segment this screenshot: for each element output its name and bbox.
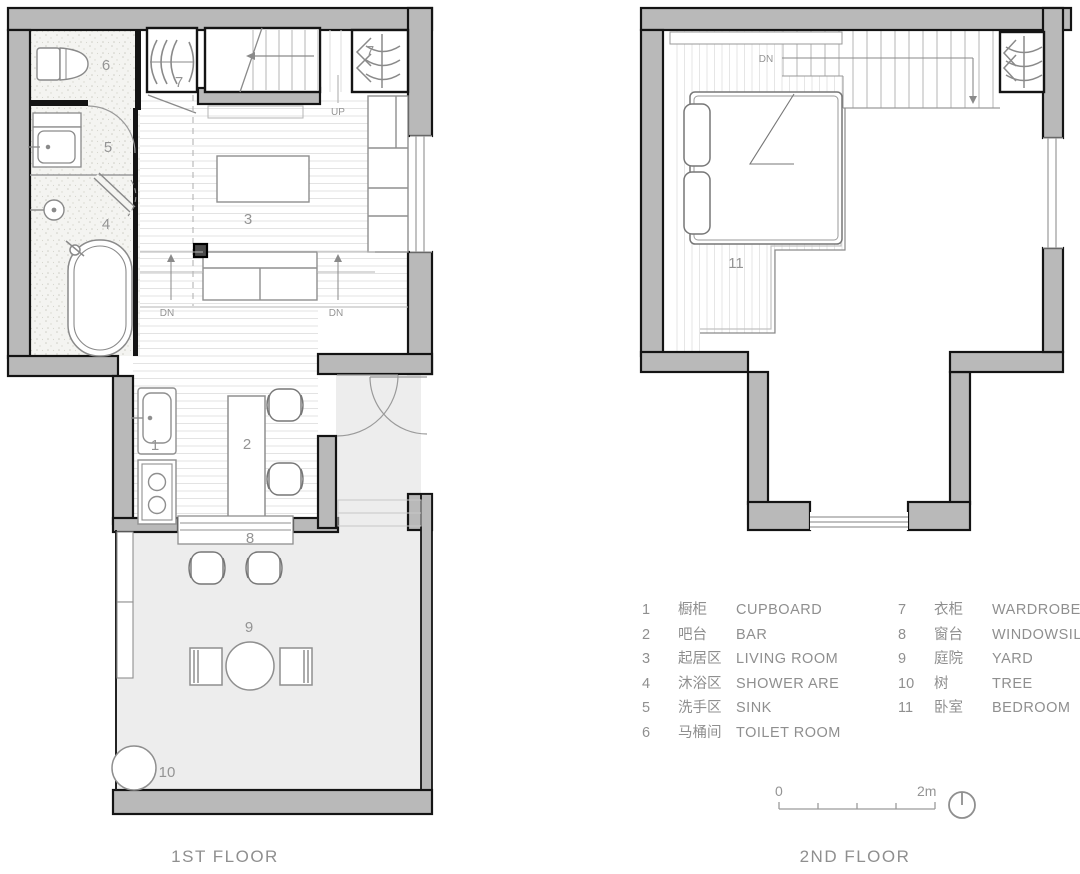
legend-item: 11 卧室 BEDROOM [898, 696, 1080, 721]
legend-chinese: 洗手区 [678, 696, 736, 721]
first-floor-title: 1ST FLOOR [135, 847, 315, 867]
legend-number: 2 [642, 623, 678, 648]
legend-item: 10 树 TREE [898, 672, 1080, 697]
legend-chinese: 衣柜 [934, 598, 992, 623]
sink-fixture [28, 113, 81, 167]
legend-number: 8 [898, 623, 934, 648]
up-label: UP [331, 107, 345, 118]
room-label-shower: 4 [102, 216, 110, 233]
legend-number: 4 [642, 672, 678, 697]
legend-english: WARDROBE [992, 598, 1080, 623]
room-label-cupboard: 1 [151, 437, 159, 454]
legend-item: 7 衣柜 WARDROBE [898, 598, 1080, 623]
column [194, 244, 207, 257]
room-label-toilet: 6 [102, 57, 110, 74]
extension-window [810, 512, 908, 530]
yard-chair-left [190, 648, 222, 685]
legend-chinese: 沐浴区 [678, 672, 736, 697]
bar-counter [228, 396, 265, 530]
legend-number: 7 [898, 598, 934, 623]
legend-chinese: 起居区 [678, 647, 736, 672]
toilet-fixture [37, 48, 88, 80]
legend-chinese: 树 [934, 672, 992, 697]
first-floor-floors [30, 30, 421, 792]
scale-2m-label: 2m [917, 783, 936, 799]
legend-column-2: 7 衣柜 WARDROBE 8 窗台 WINDOWSILL 9 庭院 YARD … [898, 598, 1080, 721]
legend-english: BEDROOM [992, 696, 1070, 721]
legend-chinese: 橱柜 [678, 598, 736, 623]
wardrobe-right [352, 30, 408, 92]
dn-label-right: DN [329, 308, 343, 319]
room-label-windowsill: 8 [246, 530, 254, 547]
room-label-wardrobe-left: 7 [175, 74, 183, 91]
legend-number: 6 [642, 721, 678, 746]
room-label-wardrobe-right: 7 [366, 43, 374, 60]
legend-number: 5 [642, 696, 678, 721]
legend-english: SINK [736, 696, 772, 721]
dn-label: DN [759, 54, 773, 65]
legend-english: BAR [736, 623, 767, 648]
living-room-window [410, 136, 432, 252]
wardrobe-second-floor [1000, 32, 1044, 92]
legend-item: 6 马桶间 TOILET ROOM [642, 721, 841, 746]
floor-plan-page: 1 2 3 4 5 6 7 7 8 9 10 UP DN DN [0, 0, 1080, 874]
legend-chinese: 卧室 [934, 696, 992, 721]
pillow [684, 104, 710, 166]
pillow [684, 172, 710, 234]
legend-item: 4 沐浴区 SHOWER ARE [642, 672, 841, 697]
cabinet [368, 96, 408, 252]
headboard-ledge [670, 32, 842, 44]
scale-bar: 0 2m [765, 782, 995, 830]
north-indicator-icon [949, 792, 975, 818]
legend-item: 1 橱柜 CUPBOARD [642, 598, 841, 623]
legend-english: TOILET ROOM [736, 721, 841, 746]
second-floor-plan: 11 DN [636, 0, 1076, 545]
legend-item: 2 吧台 BAR [642, 623, 841, 648]
legend-item: 9 庭院 YARD [898, 647, 1080, 672]
legend-english: YARD [992, 647, 1033, 672]
round-table [226, 642, 274, 690]
legend-english: SHOWER ARE [736, 672, 839, 697]
legend-english: LIVING ROOM [736, 647, 838, 672]
bathtub [66, 240, 132, 356]
bedroom-window-right [1043, 138, 1063, 248]
legend-item: 3 起居区 LIVING ROOM [642, 647, 841, 672]
room-label-bar: 2 [243, 436, 251, 453]
room-label-bedroom: 11 [728, 255, 744, 272]
room-label-sink: 5 [104, 139, 112, 156]
legend-english: TREE [992, 672, 1033, 697]
yard-chair-right [280, 648, 312, 685]
windowsill-bench [178, 516, 293, 544]
legend-number: 10 [898, 672, 934, 697]
tree-symbol [112, 746, 156, 790]
first-floor-plan: 1 2 3 4 5 6 7 7 8 9 10 UP DN DN [0, 0, 445, 835]
room-label-yard: 9 [245, 619, 253, 636]
scale-zero-label: 0 [775, 783, 783, 799]
legend-chinese: 窗台 [934, 623, 992, 648]
legend-number: 3 [642, 647, 678, 672]
coffee-table [217, 156, 309, 202]
legend-chinese: 马桶间 [678, 721, 736, 746]
scale-ruler [779, 802, 935, 809]
legend-column-1: 1 橱柜 CUPBOARD 2 吧台 BAR 3 起居区 LIVING ROOM… [642, 598, 841, 745]
legend-number: 9 [898, 647, 934, 672]
legend-item: 8 窗台 WINDOWSILL [898, 623, 1080, 648]
second-floor-title: 2ND FLOOR [765, 847, 945, 867]
legend-item: 5 洗手区 SINK [642, 696, 841, 721]
legend-english: WINDOWSILL [992, 623, 1080, 648]
room-label-living: 3 [244, 211, 252, 228]
legend-chinese: 吧台 [678, 623, 736, 648]
legend-chinese: 庭院 [934, 647, 992, 672]
room-label-tree: 10 [159, 764, 176, 781]
legend-english: CUPBOARD [736, 598, 822, 623]
legend-number: 1 [642, 598, 678, 623]
legend-number: 11 [898, 696, 934, 721]
dn-label-left: DN [160, 308, 174, 319]
